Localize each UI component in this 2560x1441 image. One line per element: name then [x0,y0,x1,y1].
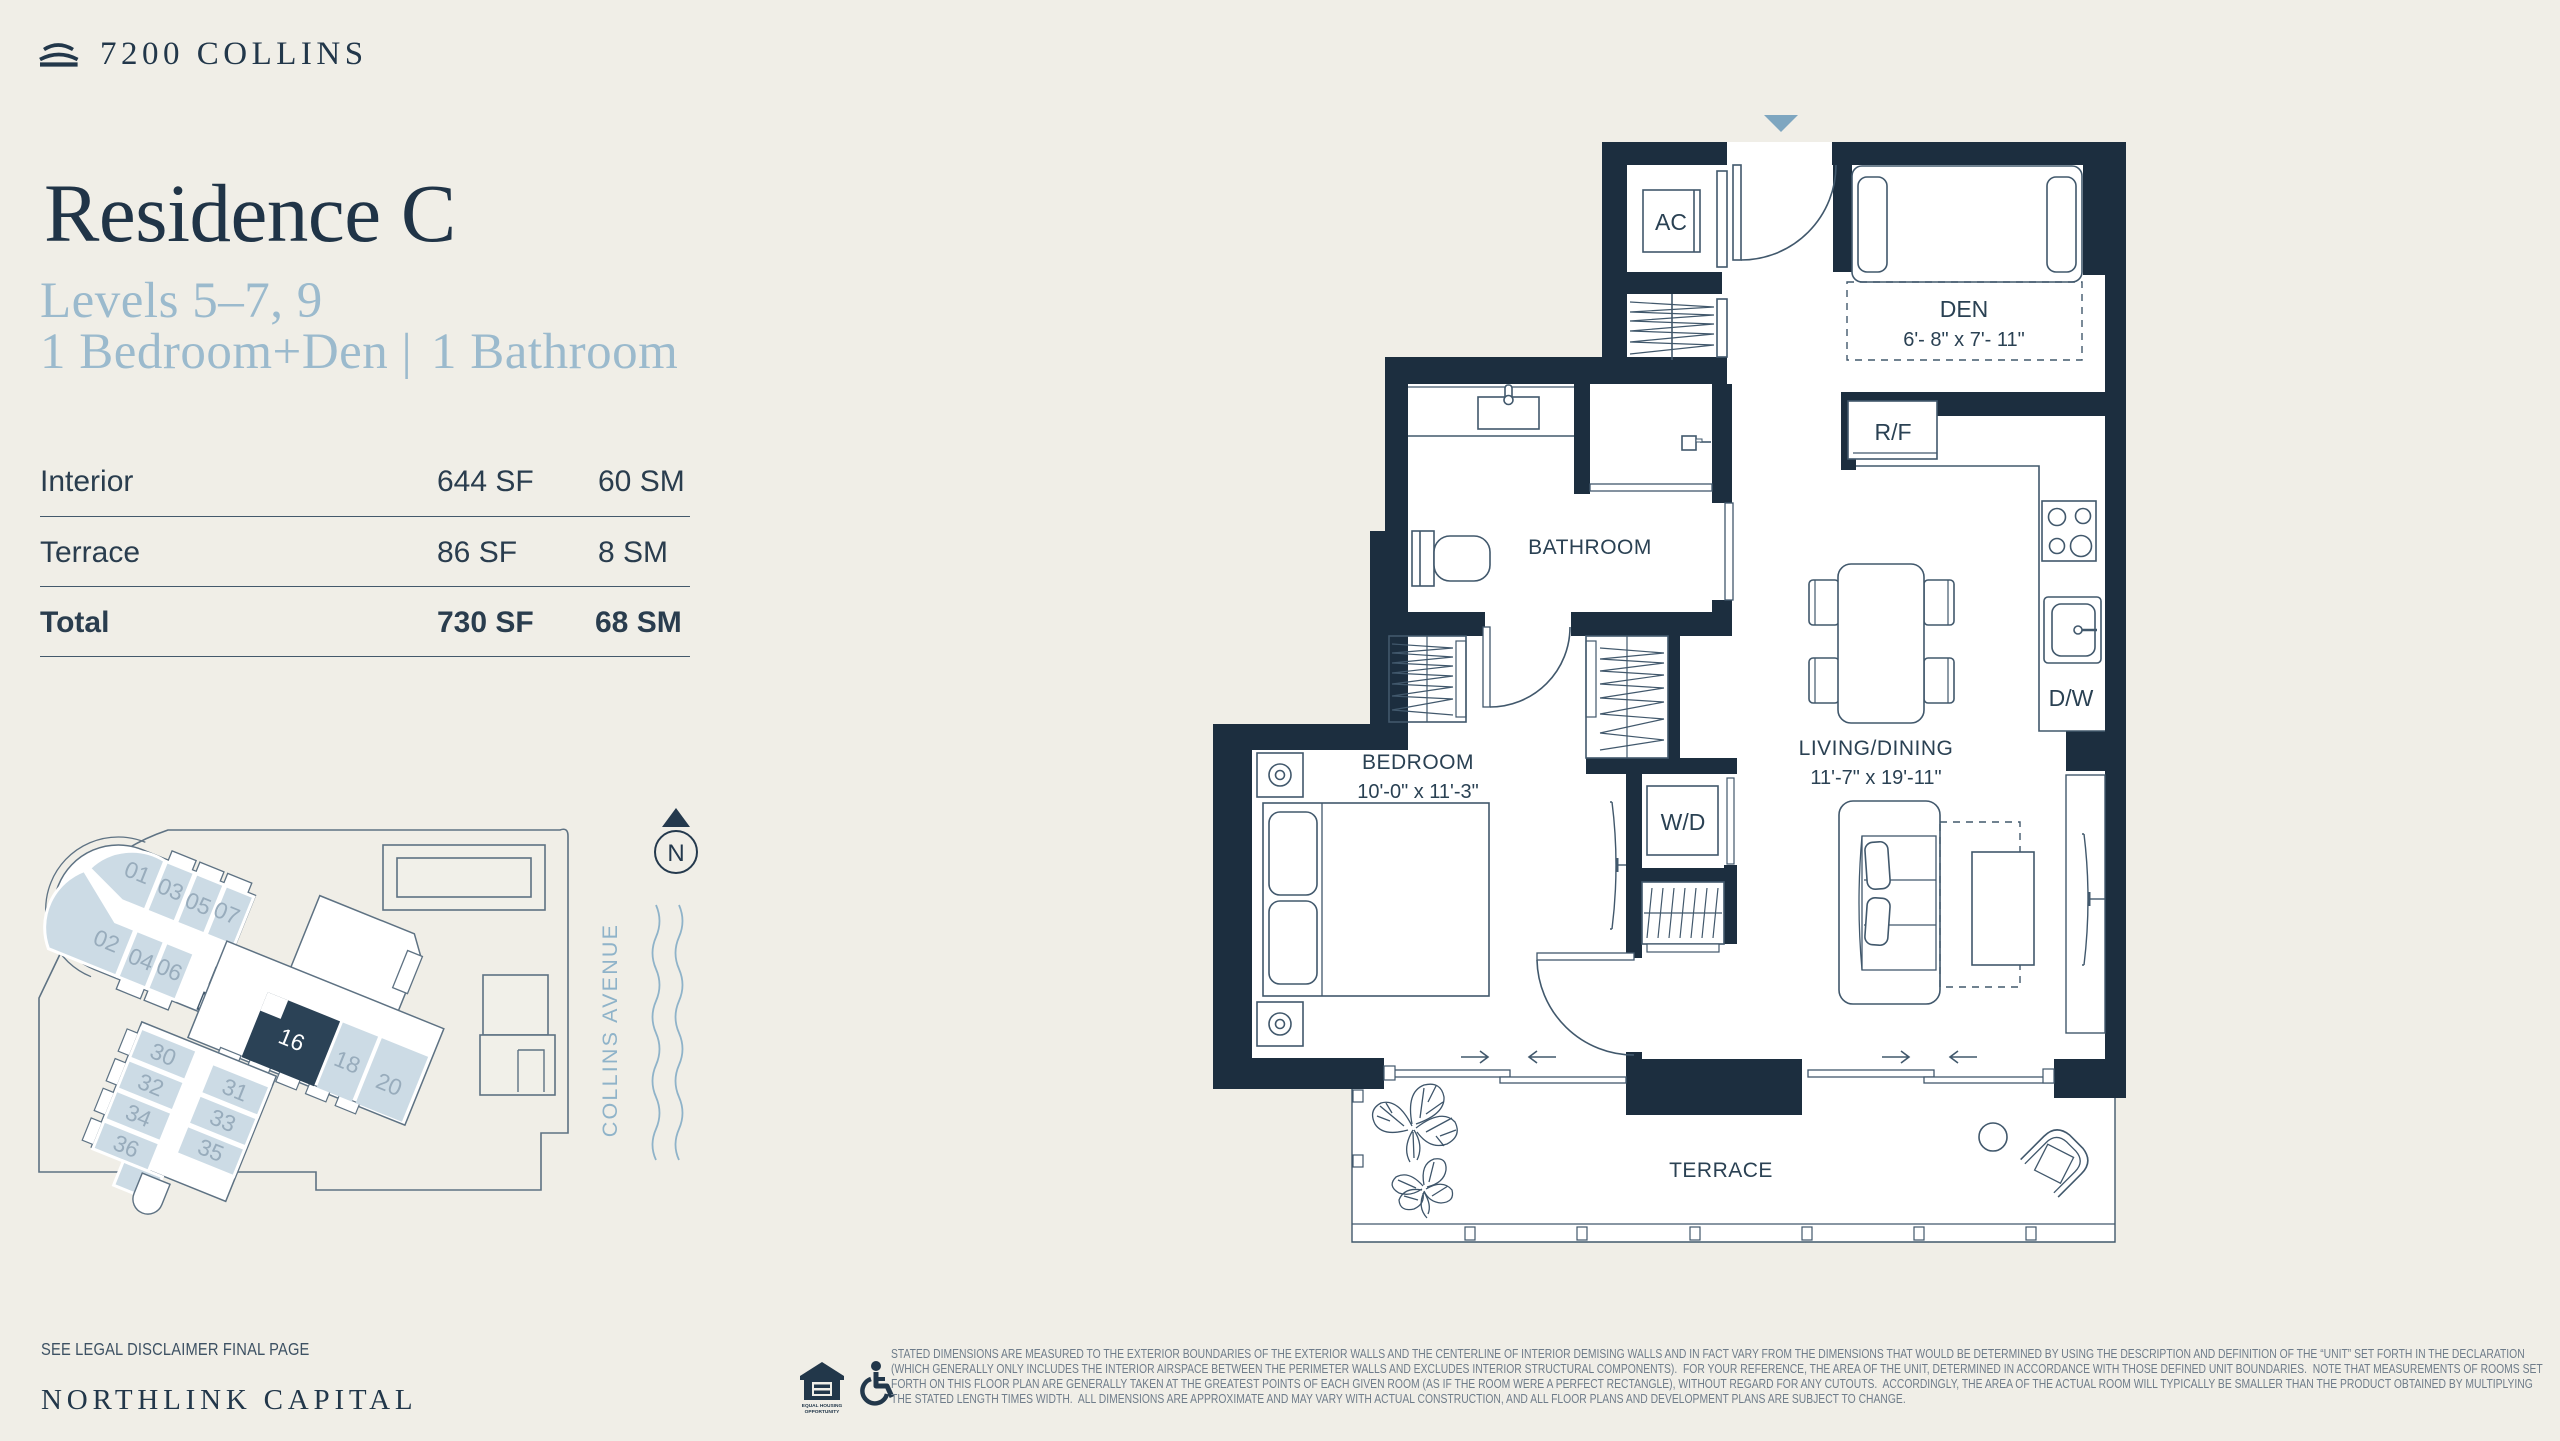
svg-text:OPPORTUNITY: OPPORTUNITY [805,1409,840,1415]
svg-text:BEDROOM: BEDROOM [1362,751,1474,774]
svg-text:R/F: R/F [1874,419,1911,445]
svg-text:AC: AC [1655,209,1687,235]
svg-text:D/W: D/W [2049,685,2094,711]
svg-text:LIVING/DINING: LIVING/DINING [1799,737,1954,760]
svg-text:BATHROOM: BATHROOM [1528,536,1652,559]
svg-text:W/D: W/D [1661,809,1706,835]
svg-text:N: N [667,840,684,867]
svg-text:TERRACE: TERRACE [1669,1159,1773,1182]
svg-text:10'-0" x 11'-3": 10'-0" x 11'-3" [1357,781,1479,803]
svg-text:11'-7" x 19'-11": 11'-7" x 19'-11" [1810,767,1941,789]
svg-text:DEN: DEN [1940,296,1989,322]
svg-text:EQUAL HOUSING: EQUAL HOUSING [802,1403,843,1409]
svg-text:6'- 8" x 7'- 11": 6'- 8" x 7'- 11" [1903,329,2025,351]
svg-text:COLLINS AVENUE: COLLINS AVENUE [598,923,622,1137]
